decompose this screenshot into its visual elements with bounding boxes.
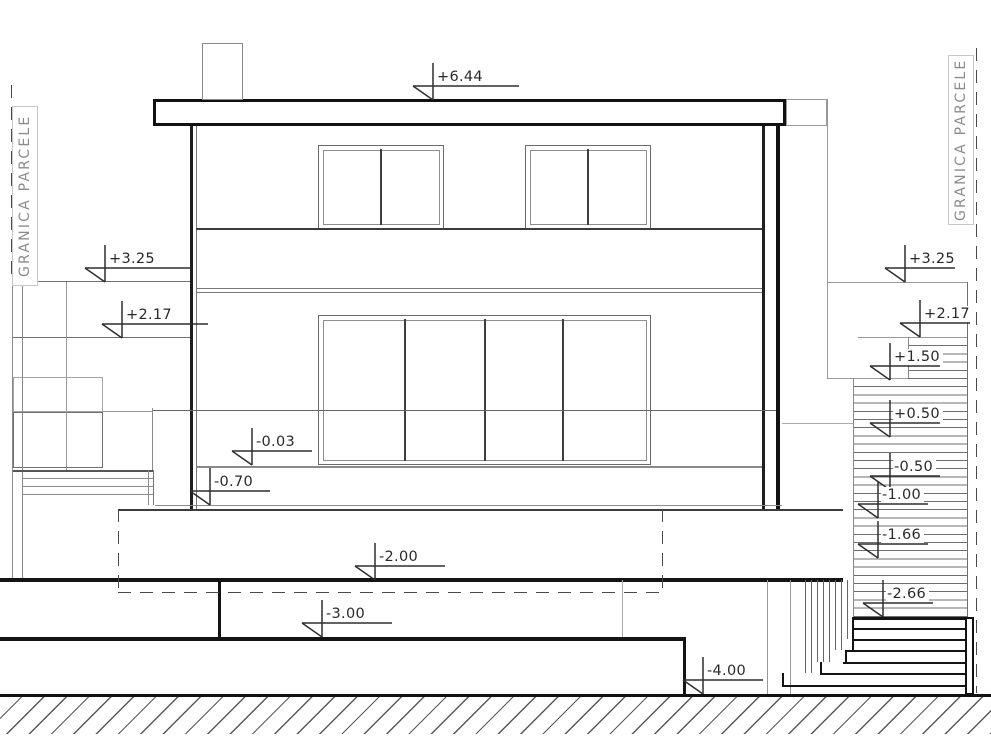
- step-edge-line: [153, 470, 154, 505]
- floor-band-line: [196, 288, 762, 289]
- elevation-value: +1.50: [893, 349, 943, 366]
- boundary-label-text: GRANICA PARCELE: [953, 59, 969, 221]
- side-level-line: [858, 337, 967, 338]
- slab-line: [155, 505, 782, 506]
- elevation-marker-plus-3-25-right: +3.25: [885, 245, 991, 282]
- elevation-marker-minus-3-00: -3.00: [302, 600, 414, 637]
- sill-band-line: [196, 228, 762, 230]
- stair-tread: [820, 673, 966, 675]
- step-line: [22, 486, 153, 487]
- baluster-line: [841, 580, 842, 650]
- facade-wall-right-inner: [762, 126, 765, 509]
- elevation-marker-minus-1-00: -1.00: [858, 481, 970, 518]
- side-wall-line: [827, 99, 828, 378]
- stair-tread: [852, 628, 966, 630]
- chimney: [202, 43, 243, 100]
- retaining-wall-top: [0, 637, 683, 641]
- louver-band-edge: [853, 378, 854, 618]
- elevation-marker-plus-2-17-right: +2.17: [900, 300, 991, 337]
- elevation-value: +2.17: [125, 307, 175, 324]
- window-mullion: [404, 319, 406, 461]
- step-line: [13, 470, 153, 472]
- basement-outline-dashed: [118, 592, 662, 593]
- roof-slab: [153, 99, 786, 126]
- stair-riser: [845, 650, 847, 662]
- elevation-marker-minus-1-66: -1.66: [858, 521, 970, 558]
- elevation-marker-plus-0-50: +0.50: [870, 400, 982, 437]
- elevation-value: -1.66: [881, 527, 924, 544]
- parcel-boundary-label-right: GRANICA PARCELE: [948, 55, 974, 225]
- stair-riser: [852, 617, 854, 650]
- basement-outline-dashed: [662, 509, 663, 592]
- elevation-marker-minus-2-66: -2.66: [863, 580, 975, 617]
- lower-window: [318, 315, 651, 465]
- elevation-value: -0.70: [213, 474, 256, 491]
- elevation-value: -2.66: [886, 586, 929, 603]
- upper-window-left: [318, 145, 444, 229]
- window-mullion: [587, 149, 589, 225]
- stair-tread: [847, 650, 966, 652]
- side-step-line: [782, 423, 853, 424]
- elevation-marker-plus-2-17-left: +2.17: [102, 301, 214, 338]
- elevation-marker-minus-0-70: -0.70: [190, 468, 302, 505]
- baluster-line: [829, 580, 830, 662]
- elevation-marker-minus-2-00: -2.00: [355, 543, 467, 580]
- elevation-value: +3.25: [108, 251, 158, 268]
- elevation-value: -2.00: [378, 549, 421, 566]
- elevation-value: +2.17: [923, 306, 973, 323]
- stair-riser: [820, 662, 822, 673]
- terrain-line: [103, 411, 152, 412]
- side-level-line: [827, 282, 967, 283]
- elevation-marker-plus-3-25-left: +3.25: [85, 245, 197, 282]
- step-line: [22, 494, 153, 495]
- elevation-marker-plus-1-50: +1.50: [870, 343, 982, 380]
- wall-line: [622, 580, 623, 637]
- stair-tread: [782, 685, 966, 687]
- terrain-step-line: [152, 408, 153, 470]
- terrain-box: [13, 377, 103, 412]
- step-line: [22, 478, 153, 479]
- window-mullion: [562, 319, 564, 461]
- terrain-box: [13, 412, 103, 468]
- window-mullion: [484, 319, 486, 461]
- parcel-boundary-label-left: GRANICA PARCELE: [12, 106, 38, 286]
- step-edge-line: [148, 470, 149, 505]
- ground-hatch: [0, 694, 991, 734]
- baluster-line: [847, 580, 848, 639]
- elevation-marker-minus-0-03: -0.03: [232, 428, 344, 465]
- roof-slab-extension: [786, 99, 827, 126]
- retaining-wall-edge: [218, 578, 221, 637]
- boundary-label-text: GRANICA PARCELE: [17, 115, 33, 277]
- baluster-line: [811, 580, 812, 673]
- baluster-line: [835, 580, 836, 650]
- stair-tread: [852, 639, 966, 641]
- elevation-marker-minus-4-00: -4.00: [683, 657, 795, 694]
- slab-line: [118, 509, 843, 511]
- floor-band-line: [196, 292, 762, 293]
- stair-tread: [852, 617, 966, 620]
- elevation-value: -3.00: [325, 606, 368, 623]
- basement-outline-dashed: [118, 509, 119, 592]
- baluster-line: [823, 580, 824, 662]
- upper-window-right: [525, 145, 651, 229]
- boundary-wall-line: [66, 282, 67, 470]
- elevation-value: -0.50: [893, 459, 936, 476]
- facade-wall-right: [776, 126, 780, 511]
- elevation-value: -1.00: [881, 487, 924, 504]
- elevation-value: +6.44: [436, 69, 486, 86]
- stair-post: [965, 617, 974, 695]
- elevation-value: -4.00: [706, 663, 749, 680]
- baluster-line: [805, 580, 806, 673]
- elevation-drawing-canvas: GRANICA PARCELE GRANICA PARCELE +6.44 +3…: [0, 0, 991, 750]
- stair-tread: [843, 662, 966, 664]
- boundary-wall-line: [12, 283, 13, 578]
- elevation-value: +3.25: [908, 251, 958, 268]
- baluster-line: [817, 580, 818, 662]
- elevation-value: +0.50: [893, 406, 943, 423]
- terrain-line: [152, 410, 776, 411]
- elevation-value: -0.03: [255, 434, 298, 451]
- boundary-wall-line: [22, 282, 23, 578]
- window-mullion: [380, 149, 382, 225]
- elevation-marker-plus-6-44: +6.44: [413, 63, 525, 100]
